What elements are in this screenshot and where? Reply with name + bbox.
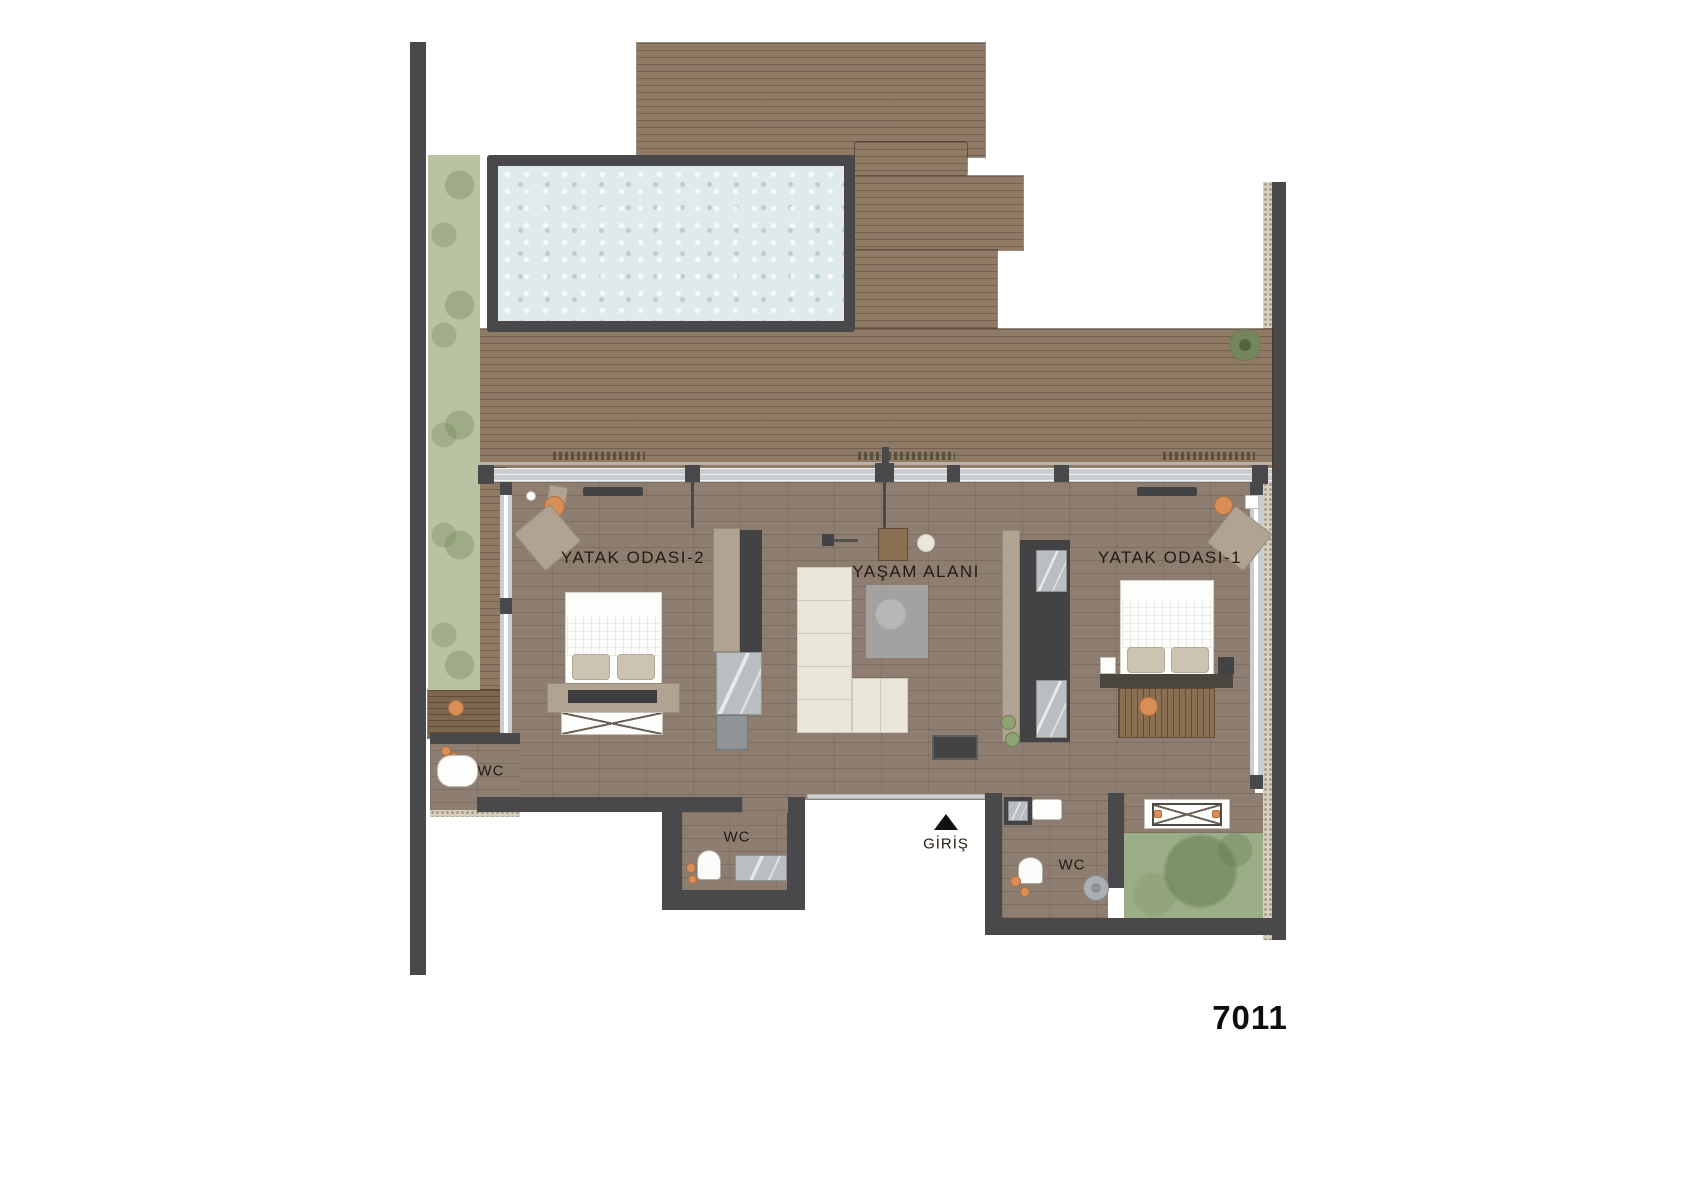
left-glass-cap <box>500 598 512 614</box>
bed-2-headboard-inset <box>568 690 657 703</box>
deck-hatch-right <box>1163 452 1255 460</box>
ceiling-light-bar <box>1137 487 1197 496</box>
lower-deck-piece <box>428 690 505 738</box>
wc-right-divider-wall <box>1108 793 1124 888</box>
entrance-label: GİRİŞ <box>923 836 969 853</box>
wc-label-right: WC <box>1059 857 1086 874</box>
sofa-horizontal-arm <box>852 678 908 733</box>
pool <box>498 166 844 321</box>
entry-bench <box>932 735 978 760</box>
pouf <box>1245 495 1259 509</box>
sofa-vertical-arm <box>797 567 852 733</box>
partition-line <box>883 482 886 528</box>
shower-drain <box>1083 875 1109 901</box>
table-lamp <box>1139 697 1158 716</box>
right-glass-cap <box>1250 775 1263 789</box>
divider-right-marble-bottom <box>1036 680 1067 738</box>
wardrobe-divider-left <box>713 528 740 652</box>
room-label-living: YAŞAM ALANI <box>852 562 980 582</box>
bathtub <box>437 755 478 787</box>
bed-2-blanket <box>567 616 660 656</box>
vanity <box>735 855 787 881</box>
wc-middle-bottom-wall <box>662 890 805 910</box>
unit-number: 7011 <box>1212 999 1288 1037</box>
nightstand <box>1100 657 1116 674</box>
potted-plant <box>1005 732 1020 747</box>
bed-2-pillow <box>572 654 610 680</box>
divider-left-appliance <box>716 715 748 750</box>
bed-1-blanket <box>1122 600 1212 648</box>
tree-center <box>1239 339 1251 351</box>
mullion-post-center <box>875 463 894 484</box>
stool <box>688 875 697 884</box>
tv-unit-front <box>1002 530 1020 742</box>
thermostat-arm <box>834 539 858 542</box>
ceiling-light-bar <box>583 487 643 496</box>
potted-plant <box>1001 715 1016 730</box>
deck-step-1 <box>855 142 967 176</box>
right-wing-left-wall <box>985 793 1002 935</box>
vanity-top <box>1008 801 1028 821</box>
console-table <box>878 528 908 561</box>
divider-left-marble <box>716 652 762 715</box>
bench-cushion <box>1154 810 1162 818</box>
right-glass-cap <box>1250 482 1263 495</box>
entry-door-line <box>807 794 985 799</box>
small-round-table <box>526 491 536 501</box>
deck-hatch-left <box>553 452 645 460</box>
upper-deck <box>637 43 985 157</box>
room-label-bedroom2: YATAK ODASI-2 <box>561 548 705 568</box>
bed-2-pillow <box>617 654 655 680</box>
right-wing-bottom-wall <box>985 918 1272 935</box>
wc-left-top-wall <box>430 733 520 744</box>
deck-stool <box>448 700 464 716</box>
bed-1-pillow <box>1127 647 1165 673</box>
wc-middle-right-wall <box>787 797 805 910</box>
washbasin <box>1032 799 1062 820</box>
stool <box>1010 876 1021 887</box>
right-wall-stone-strip <box>1263 182 1272 940</box>
stool <box>686 863 696 873</box>
bed-2-bench <box>561 712 663 735</box>
living-rug <box>866 585 928 658</box>
south-wall <box>477 797 745 812</box>
bed-1-back-cabinet <box>1118 688 1215 738</box>
side-planting-strip <box>428 155 480 690</box>
mullion-post-stub <box>882 447 889 465</box>
partition-line <box>691 482 694 528</box>
wc-label-middle: WC <box>724 829 751 846</box>
entrance-arrow-icon <box>934 814 958 830</box>
left-glass-cap <box>500 482 512 495</box>
wc-middle-door-gap <box>742 797 788 813</box>
floor-plan: YATAK ODASI-2 YAŞAM ALANI YATAK ODASI-1 … <box>0 0 1684 1190</box>
wardrobe-divider-left-back <box>740 530 762 652</box>
bench-cushion <box>1212 810 1220 818</box>
nightstand <box>1218 657 1234 674</box>
deck-step-3 <box>855 250 997 330</box>
bed-1-headboard-counter <box>1100 674 1233 688</box>
thermostat-icon <box>822 534 834 546</box>
left-boundary-wall <box>410 42 426 975</box>
left-glass-wall <box>500 482 512 758</box>
toilet <box>1018 857 1043 884</box>
bed-1-pillow <box>1171 647 1209 673</box>
divider-right-marble-top <box>1036 550 1067 592</box>
round-side-table <box>917 534 935 552</box>
stool <box>1020 887 1030 897</box>
wc-label-left: WC <box>478 763 505 780</box>
private-garden <box>1124 833 1263 918</box>
deck-step-2 <box>855 176 1023 250</box>
deck-hatch-center <box>858 452 955 460</box>
mullion-post <box>478 465 494 484</box>
toilet <box>697 850 721 880</box>
terrace-deck <box>480 329 1272 468</box>
room-label-bedroom1: YATAK ODASI-1 <box>1098 548 1242 568</box>
right-boundary-wall <box>1272 182 1286 940</box>
